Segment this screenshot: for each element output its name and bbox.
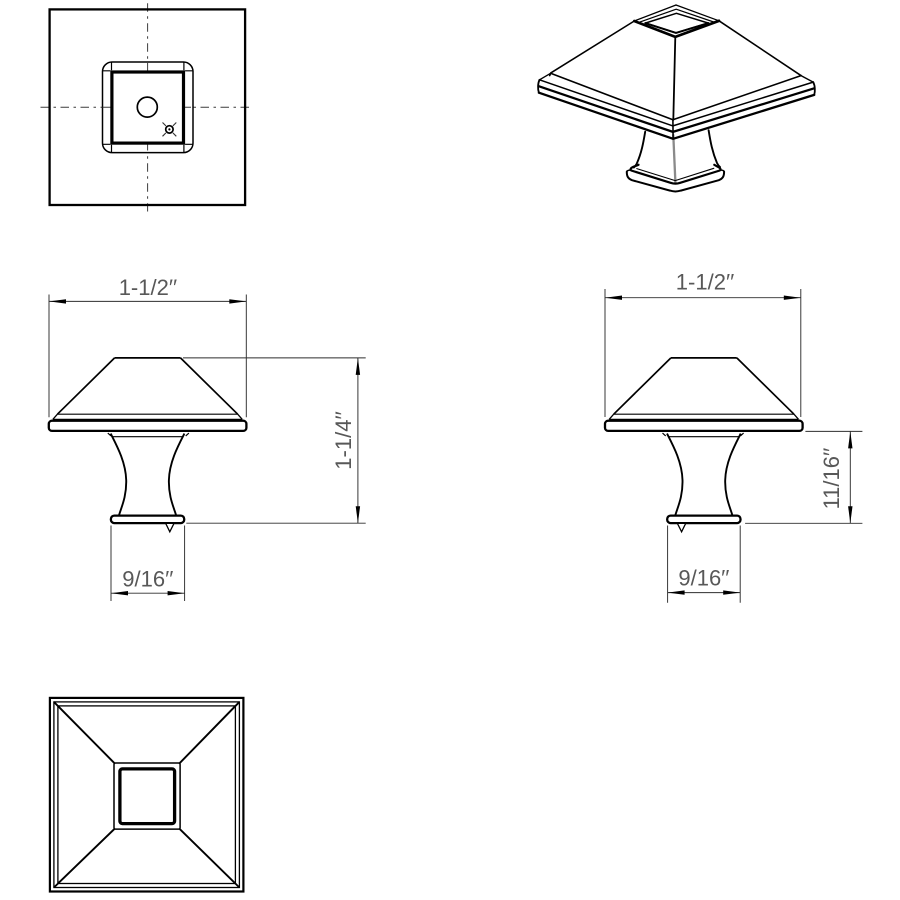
svg-text:9/16′′: 9/16′′ [122,567,173,592]
svg-text:11/16′′: 11/16′′ [819,448,844,510]
svg-text:1-1/4′′: 1-1/4′′ [331,411,356,469]
svg-text:1-1/2′′: 1-1/2′′ [676,270,734,295]
svg-text:1-1/2′′: 1-1/2′′ [119,275,177,300]
svg-text:9/16′′: 9/16′′ [678,566,729,591]
